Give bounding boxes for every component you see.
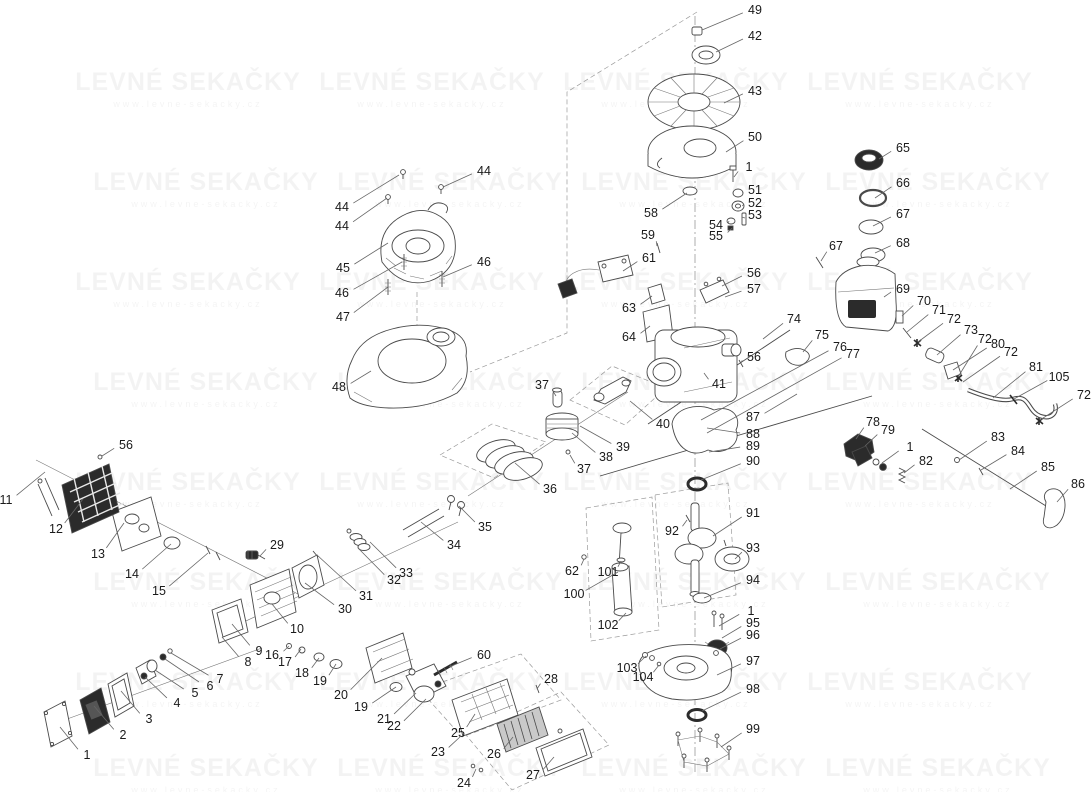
- intake-washer: [314, 653, 324, 661]
- coil-bolt: [622, 259, 626, 263]
- callout-leader-line: [765, 394, 797, 413]
- callout-label: 69: [896, 282, 910, 296]
- callout-leader-line: [981, 455, 1006, 470]
- blower-housing: [347, 325, 467, 408]
- callout-label: 37: [577, 462, 591, 476]
- callout-leader-line: [701, 464, 741, 480]
- callout-label: 77: [846, 347, 860, 361]
- cover-screw-24: [479, 768, 483, 772]
- callout-label: 8: [245, 655, 252, 669]
- governor-spring: [899, 468, 905, 483]
- callout-label: 22: [387, 719, 401, 733]
- callout-label: 15: [152, 584, 166, 598]
- callout-label: 86: [1071, 477, 1085, 491]
- callout-label: 68: [896, 236, 910, 250]
- callout-label: 13: [91, 547, 105, 561]
- callout-label: 1: [746, 160, 753, 174]
- valve-springs: [347, 529, 370, 551]
- callout-label: 72: [978, 332, 992, 346]
- callout-label: 98: [746, 682, 760, 696]
- thrust-washer-94: [693, 593, 711, 603]
- callout-leader-line: [295, 649, 301, 657]
- guard-bolt: [98, 455, 102, 459]
- callout-label: 33: [399, 566, 413, 580]
- push-rods: [403, 509, 444, 537]
- callout-leader-line: [702, 13, 743, 30]
- callout-label: 96: [746, 628, 760, 642]
- tank-grommet: [896, 311, 903, 323]
- callout-leader-line: [713, 517, 742, 536]
- callout-label: 40: [656, 417, 670, 431]
- callout-leader-line: [662, 193, 687, 209]
- callout-leader-line: [171, 653, 209, 675]
- callout-leader-line: [918, 323, 943, 342]
- callout-label: 49: [748, 3, 762, 17]
- spark-plug: [246, 551, 265, 559]
- callout-leader-line: [581, 559, 584, 565]
- callout-label: 20: [334, 688, 348, 702]
- carb-stud: [434, 662, 457, 676]
- ignition-coil: [598, 255, 633, 282]
- starter-cup-hub: [699, 51, 713, 59]
- callout-label: 5: [192, 686, 199, 700]
- plug-cap: [558, 279, 577, 298]
- flywheel: [648, 126, 736, 178]
- control-rod: [922, 429, 1046, 506]
- governor-washer: [873, 459, 879, 465]
- callout-label: 72: [1077, 388, 1091, 402]
- callout-label: 11: [0, 493, 13, 507]
- callout-label: 18: [295, 666, 309, 680]
- callout-label: 6: [207, 679, 214, 693]
- callout-label: 61: [642, 251, 656, 265]
- callout-label: 27: [526, 768, 540, 782]
- callout-leader-line: [353, 175, 399, 203]
- callout-label: 46: [335, 286, 349, 300]
- camshaft-gear: [715, 540, 749, 571]
- callout-label: 104: [633, 670, 654, 684]
- callout-label: 28: [544, 672, 558, 686]
- callout-leader-line: [580, 426, 611, 443]
- callout-leader-line: [570, 455, 575, 463]
- callout-label: 66: [896, 176, 910, 190]
- pin-clip: [566, 450, 570, 454]
- callout-label: 35: [478, 520, 492, 534]
- callout-label: 16: [265, 648, 279, 662]
- cover-screw-24: [471, 764, 475, 768]
- callout-label: 76: [833, 340, 847, 354]
- callout-label: 17: [278, 655, 292, 669]
- callout-leader-line: [959, 441, 987, 460]
- callout-leader-line: [1010, 471, 1037, 489]
- housing-bolts-44: [386, 170, 444, 204]
- callout-label: 59: [641, 228, 655, 242]
- crankshaft: [675, 503, 716, 597]
- callout-label: 24: [457, 776, 471, 790]
- callout-label: 97: [746, 654, 760, 668]
- valve-train: [292, 496, 465, 599]
- callout-label: 47: [336, 310, 350, 324]
- callout-leader-line: [155, 670, 184, 689]
- engine-exploded-diagram: 4942435015152535455585961636456575641747…: [0, 0, 1091, 792]
- exploded-parts-diagram-page: LEVNÉ SEKAČKYwww.levne-sekacky.czLEVNÉ S…: [0, 0, 1091, 792]
- callout-label: 105: [1049, 370, 1070, 384]
- rod-joint: [955, 458, 960, 463]
- fuel-tank: [836, 257, 897, 331]
- callout-leader-line: [902, 306, 913, 316]
- callout-leader-line: [404, 699, 426, 721]
- callout-leader-line: [572, 433, 595, 452]
- fuel-filter: [924, 347, 945, 364]
- tank-pin: [816, 257, 823, 268]
- callout-label: 85: [1041, 460, 1055, 474]
- callout-label: 48: [332, 380, 346, 394]
- callout-label: 67: [829, 239, 843, 253]
- callout-leader-line: [958, 346, 977, 377]
- callout-leader-line: [704, 583, 741, 598]
- callout-label: 71: [932, 303, 946, 317]
- callout-label: 39: [616, 440, 630, 454]
- callout-leader-line: [741, 360, 742, 363]
- callout-leader-line: [165, 659, 199, 682]
- callout-label: 38: [599, 450, 613, 464]
- breather-washer-7: [168, 649, 172, 653]
- breather-gasket-3: [108, 673, 134, 717]
- cap-gasket: [859, 220, 883, 234]
- callout-label: 58: [644, 206, 658, 220]
- callout-label: 46: [477, 255, 491, 269]
- callout-leader-line: [537, 684, 540, 689]
- callout-label: 53: [748, 208, 762, 222]
- piston-rings: [474, 435, 545, 484]
- callout-label: 63: [622, 301, 636, 315]
- callout-label: 51: [748, 183, 762, 197]
- callout-label: 64: [622, 330, 636, 344]
- callout-leader-line: [907, 315, 928, 332]
- callout-leader-line: [993, 372, 1025, 398]
- callout-label: 56: [747, 350, 761, 364]
- callout-label: 62: [565, 564, 579, 578]
- callout-leader-line: [1040, 399, 1073, 420]
- shield-bolt: [717, 277, 721, 281]
- callout-leader-line: [904, 465, 915, 473]
- callout-label: 37: [535, 378, 549, 392]
- callout-label: 31: [359, 589, 373, 603]
- sump-bolts-99: [676, 728, 731, 772]
- callout-leader-line: [937, 335, 961, 355]
- callout-label: 34: [447, 538, 461, 552]
- callout-leader-line: [17, 472, 45, 495]
- cap-ring: [860, 190, 886, 206]
- callout-label: 32: [387, 573, 401, 587]
- callout-label: 30: [338, 602, 352, 616]
- crankcase-gasket: [672, 406, 738, 452]
- sump-bolts-1-95: [712, 611, 724, 630]
- callout-leader-line: [260, 549, 266, 556]
- exhaust-gasket: [164, 537, 180, 549]
- callout-label: 87: [746, 410, 760, 424]
- callout-label: 43: [748, 84, 762, 98]
- callout-label: 84: [1011, 444, 1025, 458]
- callout-leader-line: [472, 769, 476, 777]
- bracket-upper: [648, 284, 665, 304]
- callout-leader-line: [722, 276, 742, 286]
- callout-label: 44: [335, 200, 349, 214]
- tube-bolt-62: [582, 555, 586, 559]
- callout-label: 45: [336, 261, 350, 275]
- callout-label: 94: [746, 573, 760, 587]
- callout-leader-line: [145, 677, 167, 698]
- callout-label: 50: [748, 130, 762, 144]
- breather-valve-4-5: [136, 660, 157, 684]
- callout-leader-line: [803, 340, 812, 352]
- callout-label: 90: [746, 454, 760, 468]
- callout-leader-line: [742, 192, 743, 193]
- callout-label: 72: [1004, 345, 1018, 359]
- head-axis-line: [218, 522, 458, 634]
- callout-label: 80: [991, 337, 1005, 351]
- callout-leader-line: [630, 401, 652, 419]
- head-muffler-chain: [38, 455, 297, 643]
- callout-leader-line: [953, 348, 987, 370]
- piston: [546, 413, 578, 440]
- callout-label: 42: [748, 29, 762, 43]
- callout-leader-line: [142, 544, 171, 569]
- callout-leader-line: [354, 262, 402, 289]
- starter-group: [347, 170, 467, 408]
- callout-leader-line: [875, 187, 892, 198]
- governor-nut: [880, 464, 887, 471]
- breather-cover-2: [80, 688, 110, 734]
- callout-leader-line: [656, 241, 657, 246]
- callout-label: 25: [451, 726, 465, 740]
- callout-label: 56: [747, 266, 761, 280]
- callout-label: 65: [896, 141, 910, 155]
- callout-label: 100: [564, 587, 585, 601]
- valve-cover-plate: [292, 555, 324, 598]
- callout-label: 89: [746, 439, 760, 453]
- callout-label: 67: [896, 207, 910, 221]
- callout-leader-line: [721, 733, 742, 747]
- callout-label: 92: [665, 524, 679, 538]
- fuel-system: [816, 150, 1056, 425]
- callout-label: 70: [917, 294, 931, 308]
- callout-label: 74: [787, 312, 801, 326]
- callout-label: 9: [256, 644, 263, 658]
- callout-label: 3: [146, 712, 153, 726]
- callout-label: 57: [747, 282, 761, 296]
- callout-label: 102: [598, 618, 619, 632]
- callout-leader-line: [821, 252, 827, 261]
- callout-label: 7: [217, 672, 224, 686]
- callout-label: 12: [49, 522, 63, 536]
- small-hardware-column: [727, 166, 746, 230]
- callout-label: 41: [712, 377, 726, 391]
- callout-layer: 4942435015152535455585961636456575641747…: [0, 3, 1091, 790]
- flywheel-stack: [648, 27, 746, 253]
- callout-label: 44: [335, 219, 349, 233]
- callout-leader-line: [169, 553, 208, 586]
- valve-lifters: [448, 496, 465, 517]
- callout-label: 29: [270, 538, 284, 552]
- callout-leader-line: [682, 520, 687, 526]
- bottom-end-group: [582, 503, 749, 772]
- callout-leader-line: [443, 174, 472, 187]
- flywheel-nut: [692, 27, 702, 35]
- callout-label: 56: [119, 438, 133, 452]
- callout-leader-line: [716, 39, 743, 52]
- piston-pin: [553, 388, 563, 407]
- callout-label: 1: [907, 440, 914, 454]
- callout-label: 79: [881, 423, 895, 437]
- callout-leader-line: [641, 296, 652, 304]
- connecting-rod: [594, 377, 631, 404]
- sump-seal-98: [688, 710, 706, 721]
- callout-label: 101: [598, 565, 619, 579]
- callout-label: 73: [964, 323, 978, 337]
- callout-leader-line: [102, 448, 114, 456]
- callout-leader-line: [354, 287, 388, 313]
- callout-leader-line: [459, 506, 475, 522]
- control-group: [844, 434, 1065, 528]
- callout-label: 2: [120, 728, 127, 742]
- callout-label: 99: [746, 722, 760, 736]
- callout-label: 1: [84, 748, 91, 762]
- callout-leader-line: [449, 658, 472, 667]
- callout-label: 60: [477, 648, 491, 662]
- callout-label: 19: [354, 700, 368, 714]
- breather-chain: [44, 649, 172, 747]
- callout-label: 83: [991, 430, 1005, 444]
- callout-label: 93: [746, 541, 760, 555]
- callout-label: 78: [866, 415, 880, 429]
- stud-bolt: [657, 243, 660, 253]
- callout-leader-line: [372, 687, 396, 703]
- callout-label: 36: [543, 482, 557, 496]
- callout-leader-line: [882, 451, 899, 463]
- callout-leader-line: [394, 693, 416, 714]
- muffler-stud: [206, 546, 210, 554]
- callout-label: 14: [125, 567, 139, 581]
- callout-leader-line: [734, 171, 738, 177]
- piston-group: [474, 377, 631, 485]
- callout-leader-line: [728, 221, 729, 223]
- callout-label: 4: [174, 696, 181, 710]
- gasket-frame-1: [44, 701, 72, 747]
- callout-leader-line: [742, 205, 743, 206]
- carb-insulator: [366, 633, 413, 683]
- guard-bracket: [38, 478, 59, 516]
- coil-bolt: [602, 264, 606, 268]
- callout-label: 26: [487, 747, 501, 761]
- fuel-hose-inner: [968, 390, 1056, 417]
- callout-label: 19: [313, 674, 327, 688]
- callout-label: 75: [815, 328, 829, 342]
- callout-label: 23: [431, 745, 445, 759]
- callout-label: 72: [947, 312, 961, 326]
- callout-label: 91: [746, 506, 760, 520]
- callout-label: 55: [709, 229, 723, 243]
- callout-label: 81: [1029, 360, 1043, 374]
- callout-leader-line: [222, 637, 239, 656]
- callout-label: 82: [919, 454, 933, 468]
- callout-label: 10: [290, 622, 304, 636]
- fuel-cap-top: [862, 154, 876, 162]
- callout-leader-line: [353, 198, 387, 222]
- control-handle: [1043, 489, 1065, 528]
- callout-leader-line: [1014, 381, 1047, 399]
- cylinder-block-assembly: [647, 327, 743, 402]
- callout-label: 44: [477, 164, 491, 178]
- shield-bolt: [704, 282, 708, 286]
- cylinder-head: [250, 569, 297, 628]
- callout-leader-line: [722, 626, 741, 638]
